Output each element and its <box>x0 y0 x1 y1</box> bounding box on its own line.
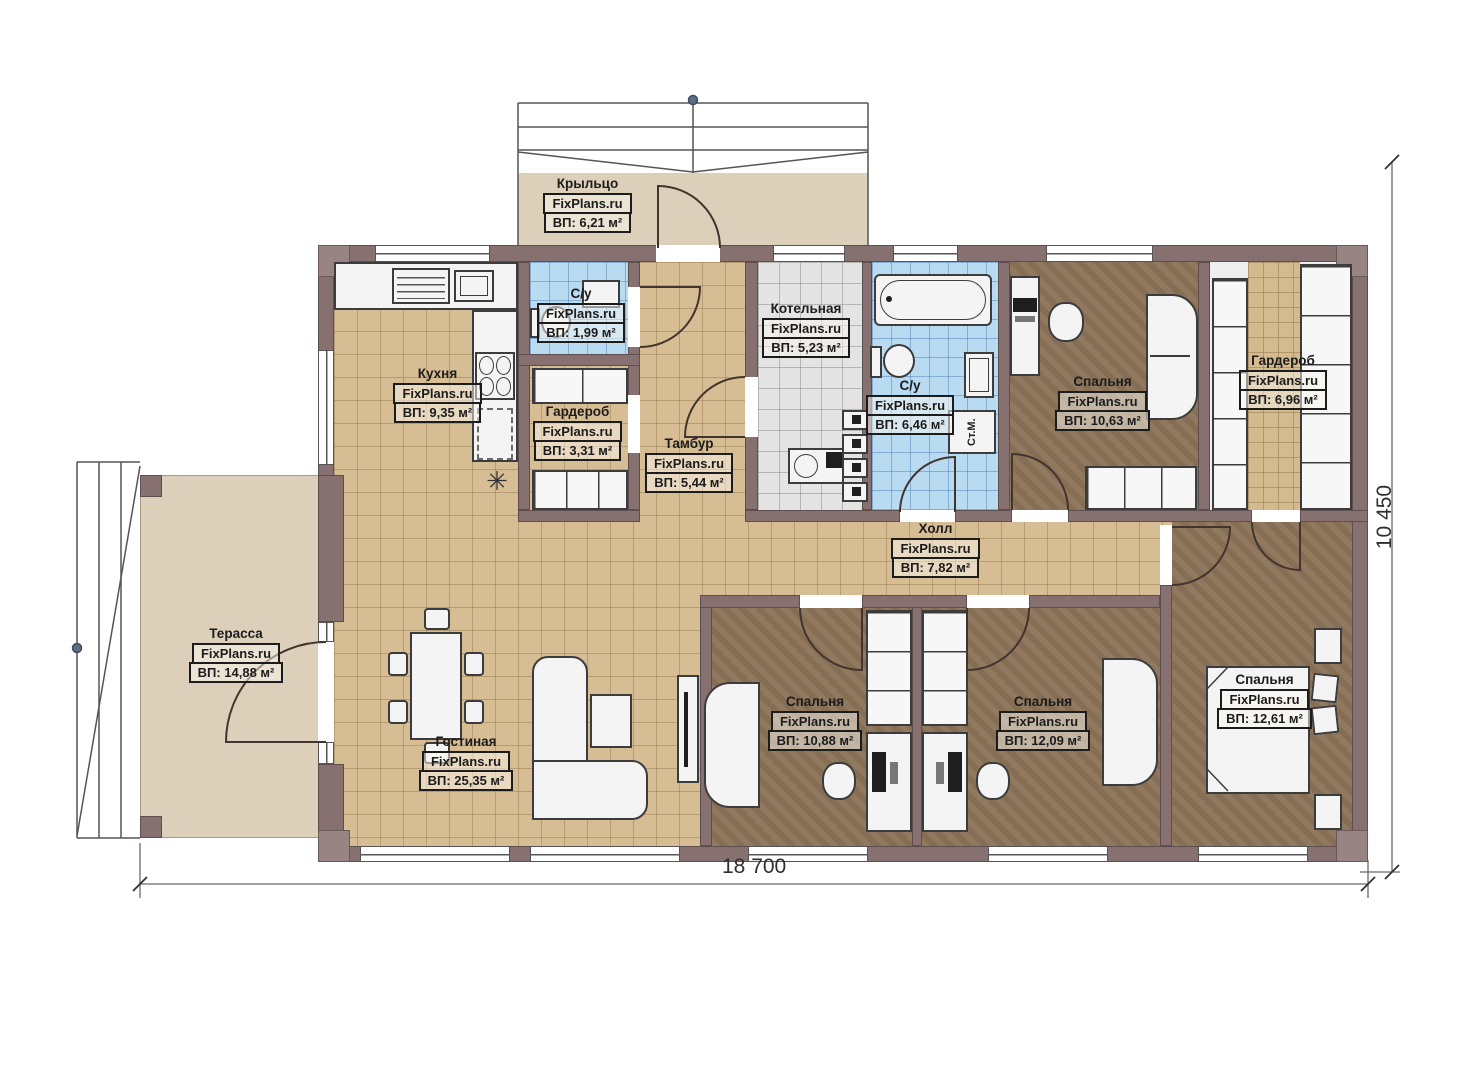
room-area: ВП: 3,31 м² <box>534 440 622 461</box>
computer-keyboard <box>890 762 898 784</box>
dish-rack <box>392 268 450 304</box>
terrace-post <box>140 475 162 497</box>
room-name: Крыльцо <box>557 176 618 191</box>
watermark: FixPlans.ru <box>1239 370 1327 391</box>
room-label-bed-middle: Спальня FixPlans.ru ВП: 12,09 м² <box>988 694 1098 751</box>
door-opening <box>745 377 758 437</box>
watermark: FixPlans.ru <box>891 538 979 559</box>
room-label-wc-small: С/у FixPlans.ru ВП: 1,99 м² <box>535 286 627 343</box>
computer-keyboard <box>936 762 944 784</box>
desk-chair <box>822 762 856 800</box>
window <box>360 846 510 862</box>
sink-basin <box>969 358 989 392</box>
computer-monitor <box>872 752 886 792</box>
wardrobe-cells <box>532 368 628 404</box>
door-opening <box>1252 510 1300 522</box>
room-name: Холл <box>919 521 953 536</box>
window <box>530 846 680 862</box>
window <box>1198 846 1308 862</box>
room-area: ВП: 1,99 м² <box>537 322 625 343</box>
desk <box>1010 276 1040 376</box>
tv <box>684 692 688 767</box>
room-area: ВП: 14,88 м² <box>189 662 284 683</box>
dining-chair <box>388 652 408 676</box>
boiler-dial <box>794 454 818 478</box>
sofa-cushion-line <box>1150 355 1190 357</box>
window <box>1046 245 1153 262</box>
window <box>773 245 845 262</box>
toilet-tank <box>870 346 882 378</box>
door-opening <box>628 287 640 347</box>
tv-stand <box>677 675 699 783</box>
watermark: FixPlans.ru <box>771 711 859 732</box>
room-area: ВП: 5,44 м² <box>645 472 733 493</box>
wall <box>912 595 922 846</box>
computer-monitor <box>1013 298 1037 312</box>
wall <box>518 262 530 510</box>
room-area: ВП: 7,82 м² <box>892 557 980 578</box>
desk-chair <box>1048 302 1084 342</box>
room-name: Спальня <box>1235 672 1293 687</box>
computer-keyboard <box>1015 316 1035 322</box>
sofa-l-horizontal <box>532 760 648 820</box>
room-label-bedroom-top: Спальня FixPlans.ru ВП: 10,63 м² <box>1045 374 1160 431</box>
watermark: FixPlans.ru <box>762 318 850 339</box>
room-area: ВП: 6,46 м² <box>866 414 954 435</box>
room-label-terrace: Терасса FixPlans.ru ВП: 14,88 м² <box>186 626 286 683</box>
dining-chair <box>464 652 484 676</box>
room-label-kitchen: Кухня FixPlans.ru ВП: 9,35 м² <box>390 366 485 423</box>
wall <box>700 595 800 608</box>
dining-table <box>410 632 462 740</box>
kitchen-sink-basin <box>460 276 488 296</box>
window <box>375 245 490 262</box>
window <box>318 622 334 642</box>
room-area: ВП: 25,35 м² <box>419 770 514 791</box>
coffee-table <box>590 694 632 748</box>
room-label-boiler-room: Котельная FixPlans.ru ВП: 5,23 м² <box>752 301 860 358</box>
room-area: ВП: 12,61 м² <box>1217 708 1312 729</box>
door-opening <box>1160 525 1172 585</box>
room-name: Спальня <box>1014 694 1072 709</box>
door-opening <box>1012 510 1068 522</box>
watermark: FixPlans.ru <box>192 643 280 664</box>
wall <box>862 595 967 608</box>
nightstand <box>1314 794 1342 830</box>
watermark: FixPlans.ru <box>393 383 481 404</box>
wardrobe-cells <box>866 610 912 726</box>
wall-corner <box>1336 830 1368 862</box>
nightstand <box>1314 628 1342 664</box>
wall <box>518 510 640 522</box>
wall <box>1160 585 1172 846</box>
snowflake-icon: ✳ <box>478 462 516 500</box>
room-area: ВП: 9,35 м² <box>394 402 482 423</box>
room-label-hall: Холл FixPlans.ru ВП: 7,82 м² <box>883 521 988 578</box>
room-name: Котельная <box>771 301 842 316</box>
boiler-box <box>826 452 842 468</box>
watermark: FixPlans.ru <box>422 751 510 772</box>
watermark: FixPlans.ru <box>533 421 621 442</box>
entry-door-opening <box>656 245 720 262</box>
room-name: Кухня <box>418 366 457 381</box>
window <box>893 245 958 262</box>
computer-monitor <box>948 752 962 792</box>
sofa <box>1102 658 1158 786</box>
bathtub-faucet <box>886 296 892 302</box>
manifold-valve <box>852 487 861 496</box>
sofa <box>704 682 760 808</box>
room-label-wardrobe-small: Гардероб FixPlans.ru ВП: 3,31 м² <box>525 404 630 461</box>
toilet-bowl <box>883 344 915 378</box>
wall-pier <box>318 475 344 622</box>
room-area: ВП: 12,09 м² <box>996 730 1091 751</box>
desk-chair <box>976 762 1010 800</box>
room-name: Спальня <box>1073 374 1131 389</box>
window <box>988 846 1108 862</box>
door-opening <box>800 595 862 608</box>
wall <box>1029 595 1160 608</box>
washing-machine-label: Ст.М. <box>966 418 978 446</box>
room-label-wardrobe-main: Гардероб FixPlans.ru ВП: 6,96 м² <box>1233 353 1333 410</box>
room-label-bedroom-left: Спальня FixPlans.ru ВП: 10,88 м² <box>760 694 870 751</box>
room-area: ВП: 10,63 м² <box>1055 410 1150 431</box>
room-name: Гардероб <box>546 404 610 419</box>
manifold-valve <box>852 463 861 472</box>
window <box>318 742 334 764</box>
wall <box>518 354 640 366</box>
door-opening <box>967 595 1029 608</box>
room-name: Гардероб <box>1251 353 1315 368</box>
terrace-door-opening <box>318 642 334 742</box>
wall <box>1068 510 1252 522</box>
wall-pier <box>318 764 344 832</box>
room-name: Тамбур <box>665 436 714 451</box>
wardrobe-cells <box>922 610 968 726</box>
wall <box>1300 510 1368 522</box>
room-label-living-room: Гостиная FixPlans.ru ВП: 25,35 м² <box>416 734 516 791</box>
room-label-vestibule: Тамбур FixPlans.ru ВП: 5,44 м² <box>638 436 740 493</box>
room-name: Гостиная <box>435 734 496 749</box>
bathtub-basin <box>880 280 986 320</box>
room-name: С/у <box>899 378 920 393</box>
dimension-height: 10 450 <box>1373 472 1397 562</box>
room-name: С/у <box>570 286 591 301</box>
wardrobe-cells <box>532 470 628 510</box>
terrace-post <box>140 816 162 838</box>
wall-corner <box>318 830 350 862</box>
watermark: FixPlans.ru <box>1220 689 1308 710</box>
watermark: FixPlans.ru <box>543 193 631 214</box>
wardrobe-cells <box>1085 466 1197 510</box>
watermark: FixPlans.ru <box>999 711 1087 732</box>
dining-chair <box>464 700 484 724</box>
manifold-valve <box>852 439 861 448</box>
room-area: ВП: 6,96 м² <box>1239 389 1327 410</box>
watermark: FixPlans.ru <box>866 395 954 416</box>
room-area: ВП: 6,21 м² <box>544 212 632 233</box>
room-area: ВП: 10,88 м² <box>768 730 863 751</box>
dining-chair <box>388 700 408 724</box>
window <box>318 350 334 465</box>
room-area: ВП: 5,23 м² <box>762 337 850 358</box>
wall <box>1352 245 1368 862</box>
room-name: Терасса <box>209 626 263 641</box>
room-name: Спальня <box>786 694 844 709</box>
wall <box>1198 262 1210 510</box>
room-label-porch: Крыльцо FixPlans.ru ВП: 6,21 м² <box>540 176 635 233</box>
terrace-steps <box>73 462 141 838</box>
room-label-bedroom-right: Спальня FixPlans.ru ВП: 12,61 м² <box>1212 672 1317 729</box>
wall <box>745 510 900 522</box>
watermark: FixPlans.ru <box>1058 391 1146 412</box>
room-label-bathroom: С/у FixPlans.ru ВП: 6,46 м² <box>860 378 960 435</box>
watermark: FixPlans.ru <box>537 303 625 324</box>
wall <box>998 262 1010 510</box>
floor-plan: ✳ Ст.М. <box>0 0 1473 1080</box>
dining-chair <box>424 608 450 630</box>
watermark: FixPlans.ru <box>645 453 733 474</box>
dimension-width: 18 700 <box>722 855 786 879</box>
